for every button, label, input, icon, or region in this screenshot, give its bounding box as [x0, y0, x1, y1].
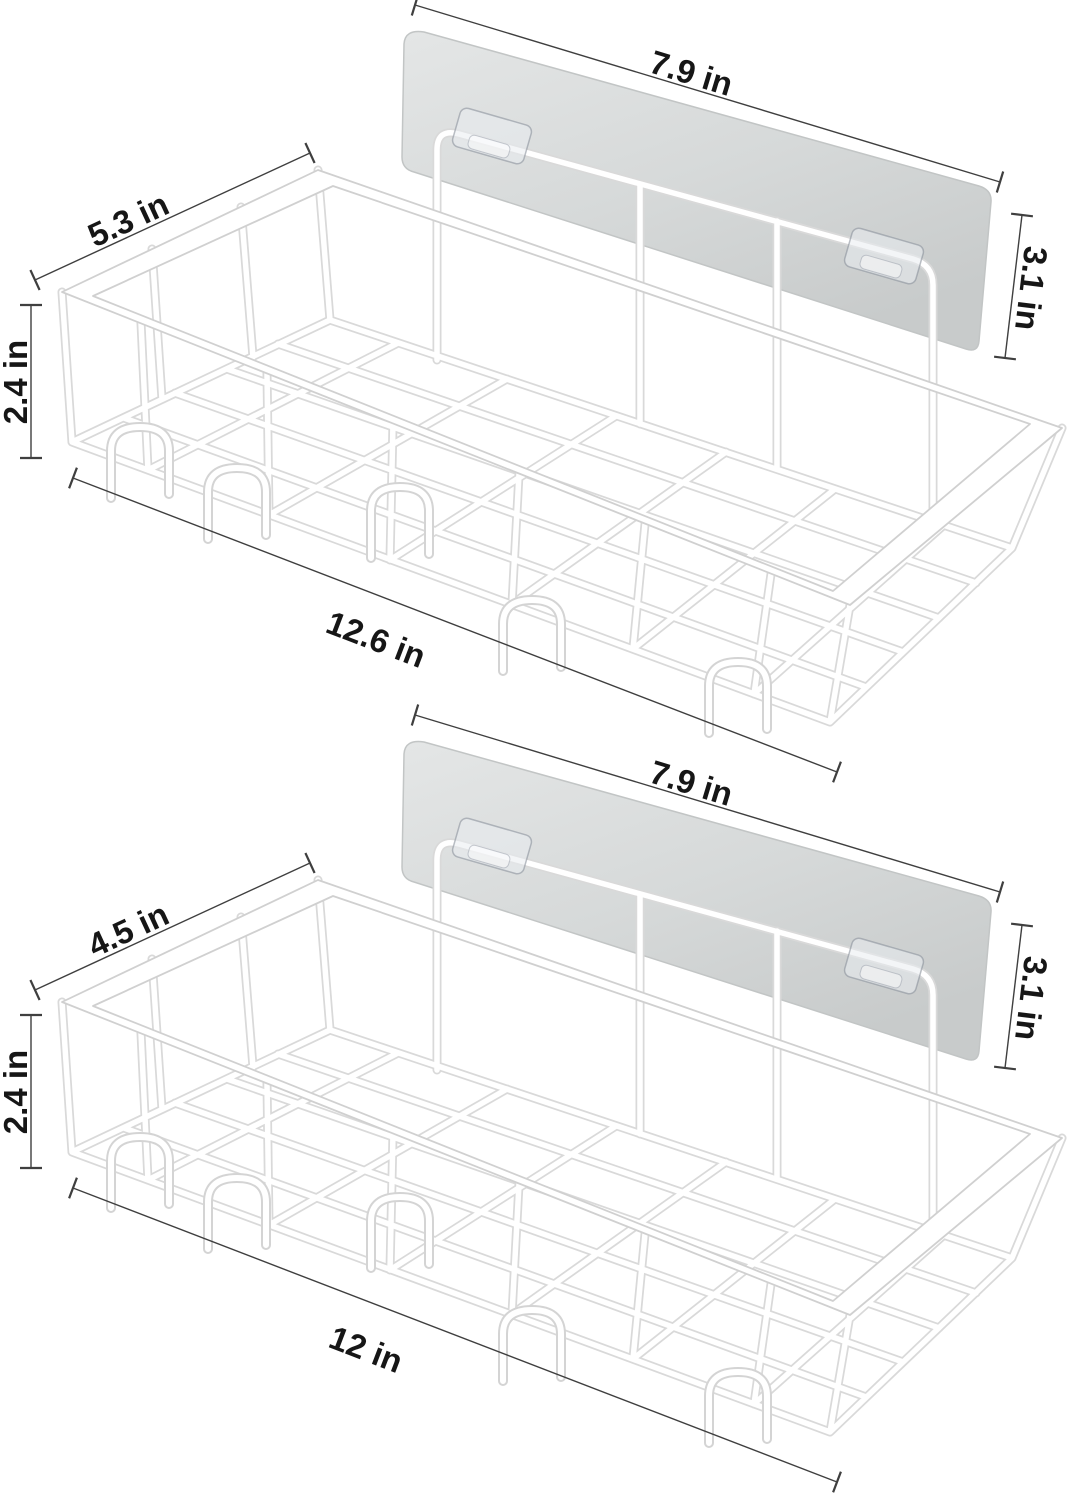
label-top-basket-height: 2.4 in	[0, 340, 34, 424]
label-bottom-plate-width: 7.9 in	[646, 753, 737, 813]
top-shelf-art	[20, 0, 1062, 782]
label-bottom-plate-height: 3.1 in	[1008, 954, 1055, 1042]
label-bottom-basket-height: 2.4 in	[0, 1050, 34, 1134]
bottom-shelf-art	[20, 705, 1062, 1493]
shower-caddy-dimension-diagram: 7.9 in 5.3 in 3.1 in 2.4 in 12.6 in 7.9 …	[0, 0, 1076, 1500]
product-dimension-page: 7.9 in 5.3 in 3.1 in 2.4 in 12.6 in 7.9 …	[0, 0, 1076, 1500]
label-top-basket-width: 12.6 in	[322, 604, 431, 675]
label-top-plate-width: 7.9 in	[646, 43, 737, 103]
label-bottom-basket-width: 12 in	[324, 1319, 407, 1380]
label-top-plate-height: 3.1 in	[1008, 244, 1055, 332]
label-bottom-basket-depth: 4.5 in	[82, 895, 174, 964]
label-top-basket-depth: 5.3 in	[82, 185, 174, 254]
